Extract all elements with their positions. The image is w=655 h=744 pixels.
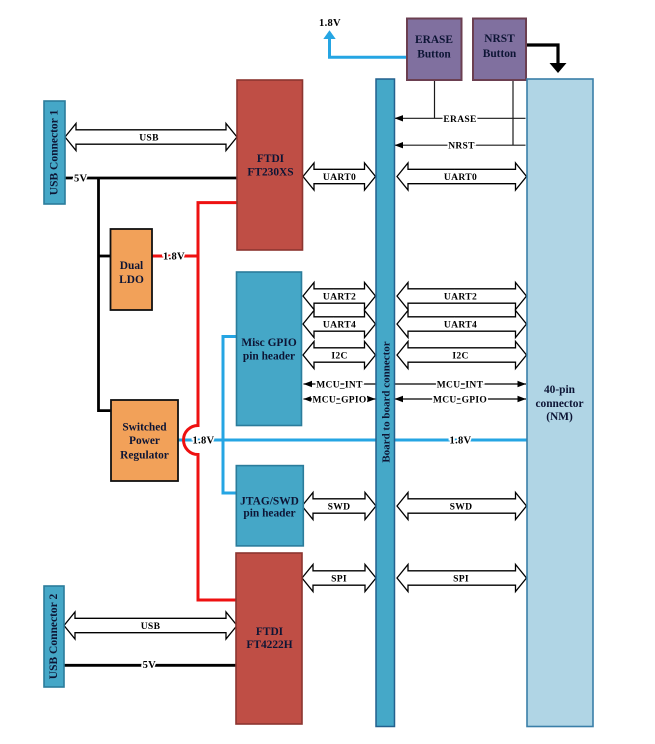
svg-text:JTAG/SWD: JTAG/SWD — [240, 496, 299, 508]
svg-text:SPI: SPI — [331, 574, 347, 585]
svg-text:UART0: UART0 — [444, 172, 477, 183]
svg-text:1.8V: 1.8V — [450, 436, 472, 447]
svg-text:Button: Button — [417, 49, 451, 61]
svg-text:USB: USB — [139, 133, 159, 144]
svg-text:FTDI: FTDI — [256, 626, 284, 638]
svg-text:5V: 5V — [143, 660, 157, 671]
svg-text:SWD: SWD — [450, 502, 473, 513]
svg-text:MCU_INT: MCU_INT — [316, 381, 363, 391]
svg-text:Board to board connector: Board to board connector — [381, 341, 393, 462]
svg-text:ERASE: ERASE — [443, 115, 476, 125]
svg-text:Switched: Switched — [122, 422, 167, 434]
svg-text:40-pin: 40-pin — [544, 384, 576, 396]
svg-text:I2C: I2C — [331, 351, 347, 362]
svg-text:UART2: UART2 — [444, 292, 477, 303]
svg-text:1.8V: 1.8V — [193, 436, 215, 447]
svg-text:Button: Button — [483, 48, 517, 60]
svg-text:UART4: UART4 — [323, 320, 356, 331]
svg-text:UART2: UART2 — [323, 292, 356, 303]
svg-text:FT4222H: FT4222H — [246, 639, 292, 651]
svg-text:USB: USB — [141, 621, 161, 632]
svg-text:I2C: I2C — [452, 351, 468, 362]
svg-text:1.8V: 1.8V — [163, 252, 185, 263]
svg-text:FT230XS: FT230XS — [247, 167, 293, 179]
svg-text:(NM): (NM) — [546, 411, 573, 423]
svg-text:NRST: NRST — [448, 142, 475, 152]
svg-text:SWD: SWD — [328, 502, 351, 513]
svg-text:USB Connector 1: USB Connector 1 — [49, 110, 61, 196]
svg-text:Regulator: Regulator — [120, 450, 169, 462]
svg-text:UART4: UART4 — [444, 320, 477, 331]
svg-text:Misc GPIO: Misc GPIO — [241, 337, 297, 349]
svg-text:pin header: pin header — [243, 351, 295, 363]
svg-text:LDO: LDO — [119, 274, 144, 286]
svg-text:pin header: pin header — [243, 508, 295, 520]
svg-text:5V: 5V — [74, 173, 88, 184]
svg-text:MCU_INT: MCU_INT — [437, 381, 484, 391]
svg-text:ERASE: ERASE — [415, 34, 453, 46]
svg-text:SPI: SPI — [453, 574, 469, 585]
svg-text:1.8V: 1.8V — [319, 18, 341, 29]
svg-text:UART0: UART0 — [323, 172, 356, 183]
svg-text:connector: connector — [535, 398, 583, 410]
svg-text:MCU_GPIO: MCU_GPIO — [312, 396, 366, 406]
svg-text:USB Connector 2: USB Connector 2 — [48, 594, 60, 680]
svg-text:Dual: Dual — [120, 260, 143, 272]
svg-text:MCU_GPIO: MCU_GPIO — [433, 396, 487, 406]
svg-text:NRST: NRST — [484, 33, 515, 45]
svg-text:FTDI: FTDI — [257, 153, 285, 165]
svg-text:Power: Power — [129, 435, 160, 447]
